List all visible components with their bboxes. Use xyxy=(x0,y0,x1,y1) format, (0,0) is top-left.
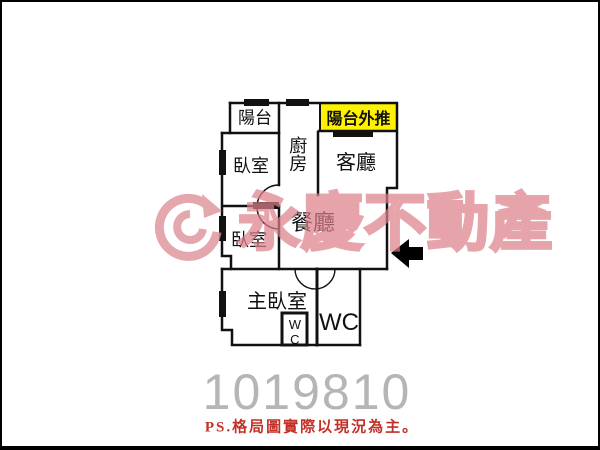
room-label-kitchen: 廚房 xyxy=(286,136,307,172)
entrance-arrow-icon xyxy=(391,239,424,269)
room-label-wc-small: WC xyxy=(287,317,302,347)
room-label-balcony: 陽台 xyxy=(238,110,272,127)
room-label-master-bedroom: 主臥室 xyxy=(247,292,307,312)
disclaimer-note: PS.格局圖實際以現況為主。 xyxy=(205,416,419,437)
room-label-bedroom-1: 臥室 xyxy=(233,157,269,175)
window-bars xyxy=(219,99,373,317)
room-label-bedroom-2: 臥室 xyxy=(231,231,267,249)
door-arcs xyxy=(257,185,335,289)
room-label-wc: WC xyxy=(319,311,359,335)
room-label-dining-room: 餐廳 xyxy=(291,212,335,234)
listing-number: 1019810 xyxy=(203,367,412,417)
floor-plan-image: 陽台外推 xyxy=(0,0,600,450)
room-label-living-room: 客廳 xyxy=(336,153,376,173)
